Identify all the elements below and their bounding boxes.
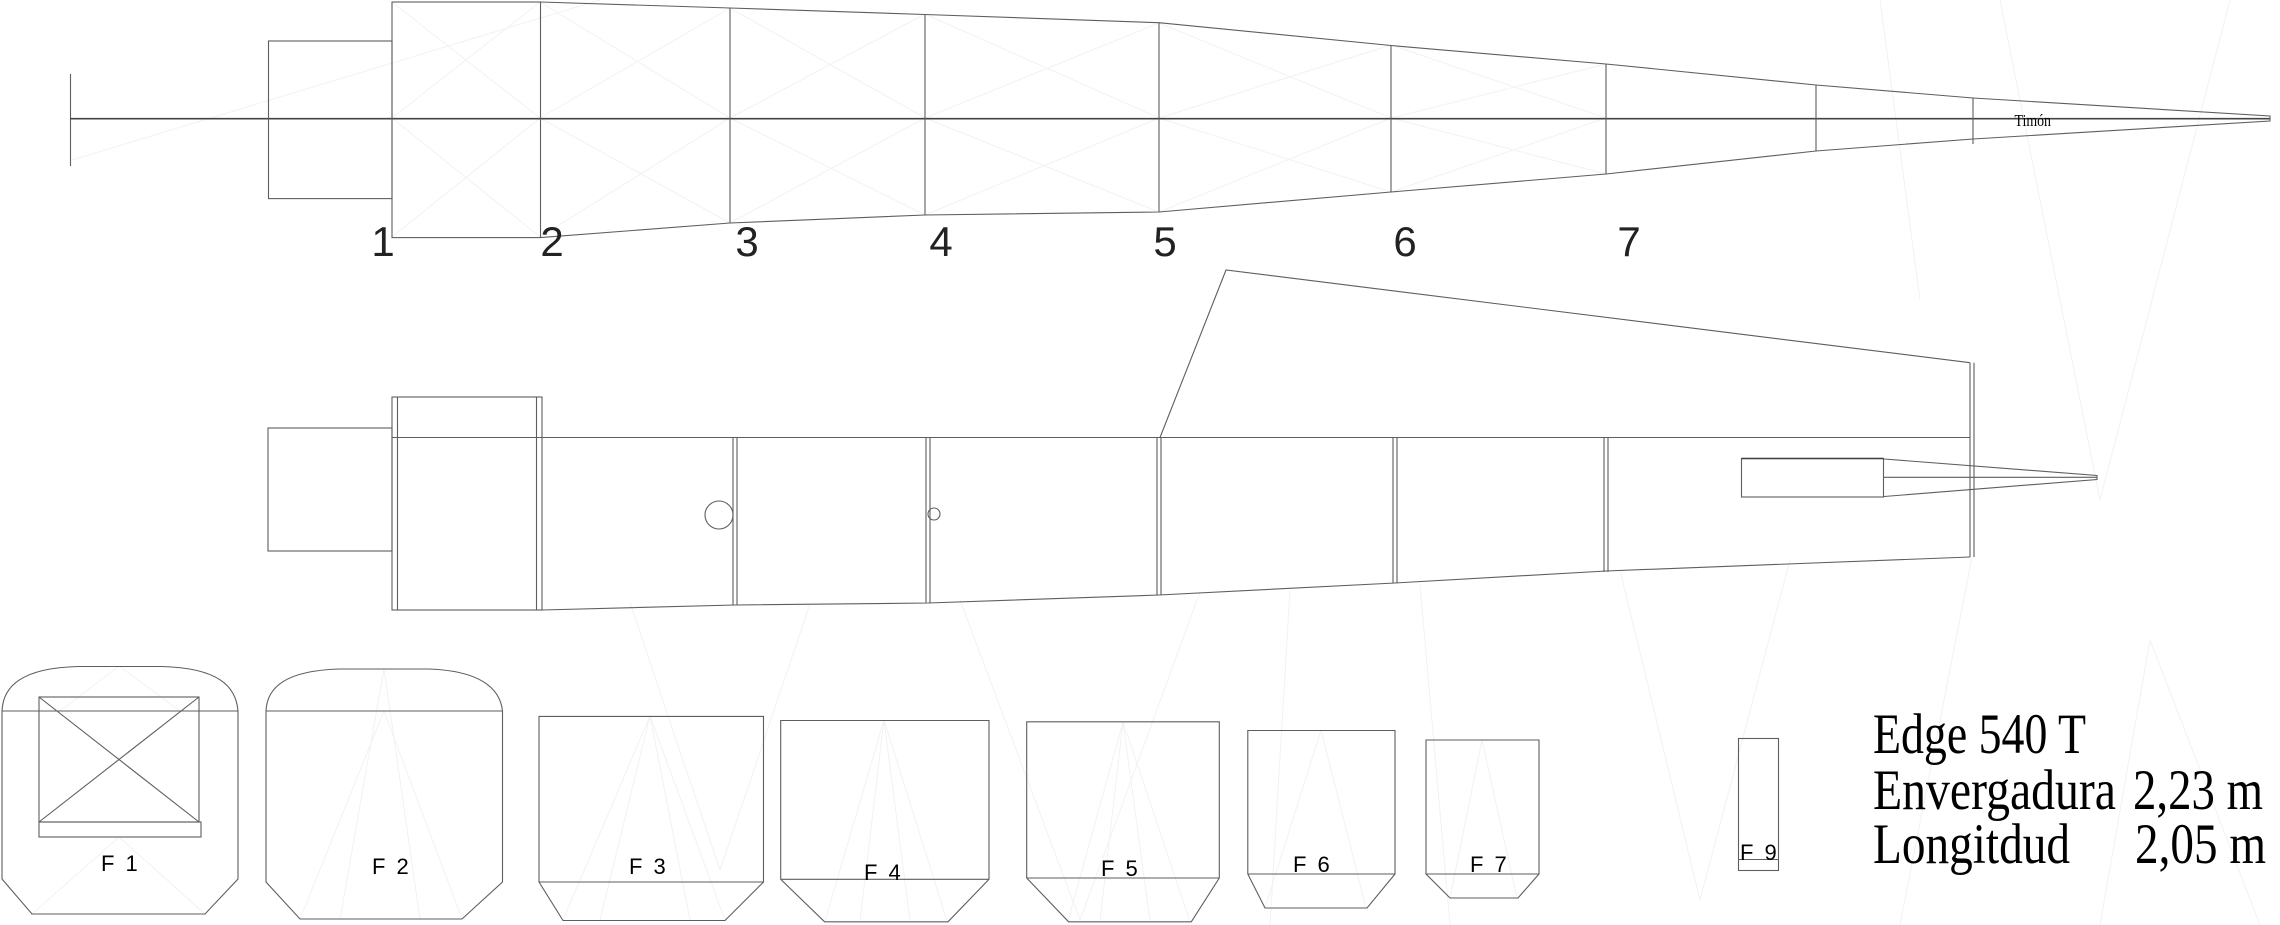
svg-text:Longitdud: Longitdud (1873, 813, 2070, 876)
svg-text:5: 5 (1153, 218, 1176, 265)
svg-text:F1: F1 (101, 851, 149, 876)
svg-text:F2: F2 (372, 854, 420, 879)
svg-text:6: 6 (1393, 218, 1416, 265)
svg-text:F9: F9 (1740, 840, 1788, 865)
svg-text:3: 3 (735, 218, 758, 265)
svg-text:F6: F6 (1293, 852, 1341, 877)
svg-text:F3: F3 (629, 854, 677, 879)
svg-text:Edge 540 T: Edge 540 T (1873, 703, 2086, 766)
svg-text:F4: F4 (864, 860, 912, 885)
svg-text:1: 1 (371, 218, 394, 265)
svg-text:2,05 m: 2,05 m (2135, 813, 2266, 876)
svg-text:F5: F5 (1101, 856, 1149, 881)
svg-text:Timón: Timón (2015, 111, 2052, 130)
svg-text:2: 2 (540, 218, 563, 265)
svg-text:4: 4 (929, 218, 952, 265)
svg-text:7: 7 (1617, 218, 1640, 265)
svg-text:F7: F7 (1470, 852, 1518, 877)
